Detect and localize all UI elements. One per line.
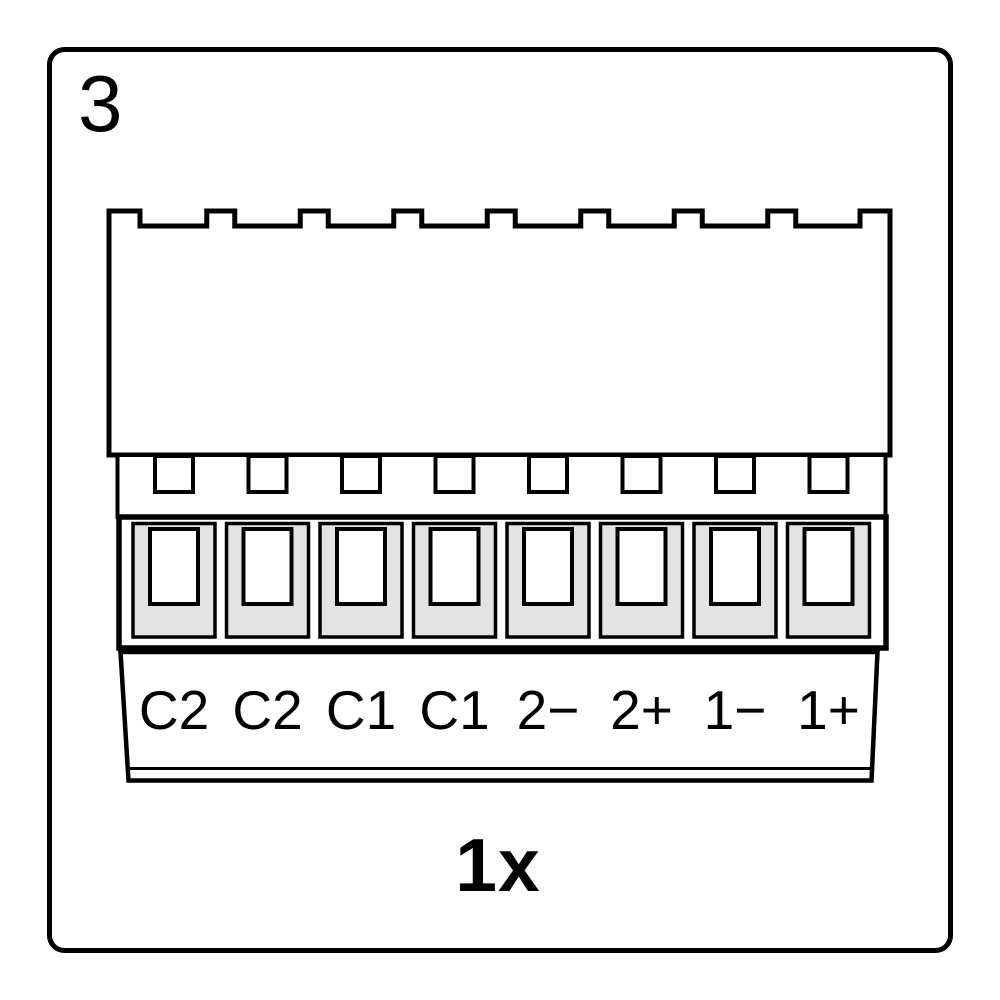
pin-label: 1+ xyxy=(797,679,860,741)
quantity-label: 1x xyxy=(455,823,540,907)
wire-window xyxy=(805,529,853,604)
release-slot xyxy=(249,456,287,492)
pin-label: C1 xyxy=(326,679,396,741)
wire-window xyxy=(431,529,479,604)
wire-window xyxy=(618,529,666,604)
release-slot xyxy=(436,456,474,492)
pin-label: 2+ xyxy=(610,679,673,741)
release-slot xyxy=(810,456,848,492)
wire-window xyxy=(244,529,292,604)
instruction-panel: 3 C xyxy=(0,0,1000,1000)
wire-window xyxy=(524,529,572,604)
pin-label: 2− xyxy=(517,679,580,741)
pin-label: C2 xyxy=(139,679,209,741)
connector-diagram: 3 C xyxy=(0,0,1000,1000)
pin-label: C2 xyxy=(232,679,302,741)
release-slot xyxy=(716,456,754,492)
pin-label: 1− xyxy=(704,679,767,741)
release-slot xyxy=(155,456,193,492)
release-slot xyxy=(623,456,661,492)
wire-window xyxy=(337,529,385,604)
release-slot xyxy=(529,456,567,492)
connector-body xyxy=(109,211,890,455)
pin-label: C1 xyxy=(419,679,489,741)
step-number: 3 xyxy=(78,59,123,148)
connector-collar xyxy=(118,455,886,517)
wire-window xyxy=(711,529,759,604)
release-slot xyxy=(342,456,380,492)
wire-window xyxy=(150,529,198,604)
